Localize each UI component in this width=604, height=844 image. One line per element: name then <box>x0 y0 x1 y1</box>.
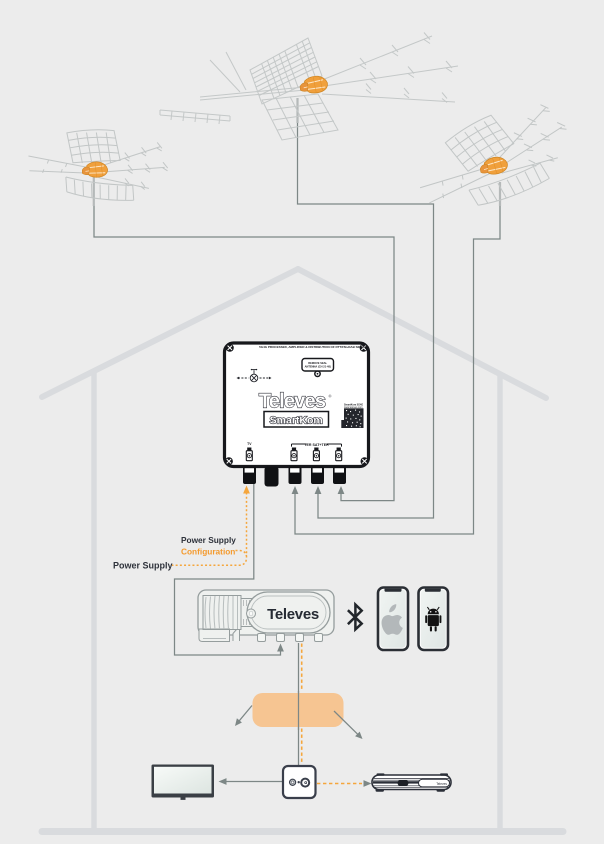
svg-text:®: ® <box>329 394 332 399</box>
svg-text:Televes: Televes <box>267 606 319 623</box>
svg-text:Configuration: Configuration <box>181 547 235 557</box>
svg-text:Televes: Televes <box>436 782 447 786</box>
svg-text:SAT: SAT <box>314 447 319 450</box>
svg-text:SmartKom: SmartKom <box>270 415 323 427</box>
svg-text:REMOVE SEAL: REMOVE SEAL <box>308 361 327 365</box>
svg-text:Power Supply: Power Supply <box>181 535 236 545</box>
svg-text:ANTENNA (CH 21-48): ANTENNA (CH 21-48) <box>305 364 331 368</box>
svg-text:TV: TV <box>247 442 252 446</box>
svg-text:SAT: SAT <box>336 447 341 450</box>
svg-text:Power Supply: Power Supply <box>113 561 173 571</box>
svg-text:TER SAT+TER: TER SAT+TER <box>304 443 329 447</box>
svg-text:Televes: Televes <box>259 391 326 413</box>
svg-text:5G4G PROCESSED, AMPLIFIER & DI: 5G4G PROCESSED, AMPLIFIER & DISTRIBUTION… <box>259 345 369 349</box>
svg-text:SAT: SAT <box>292 447 297 450</box>
